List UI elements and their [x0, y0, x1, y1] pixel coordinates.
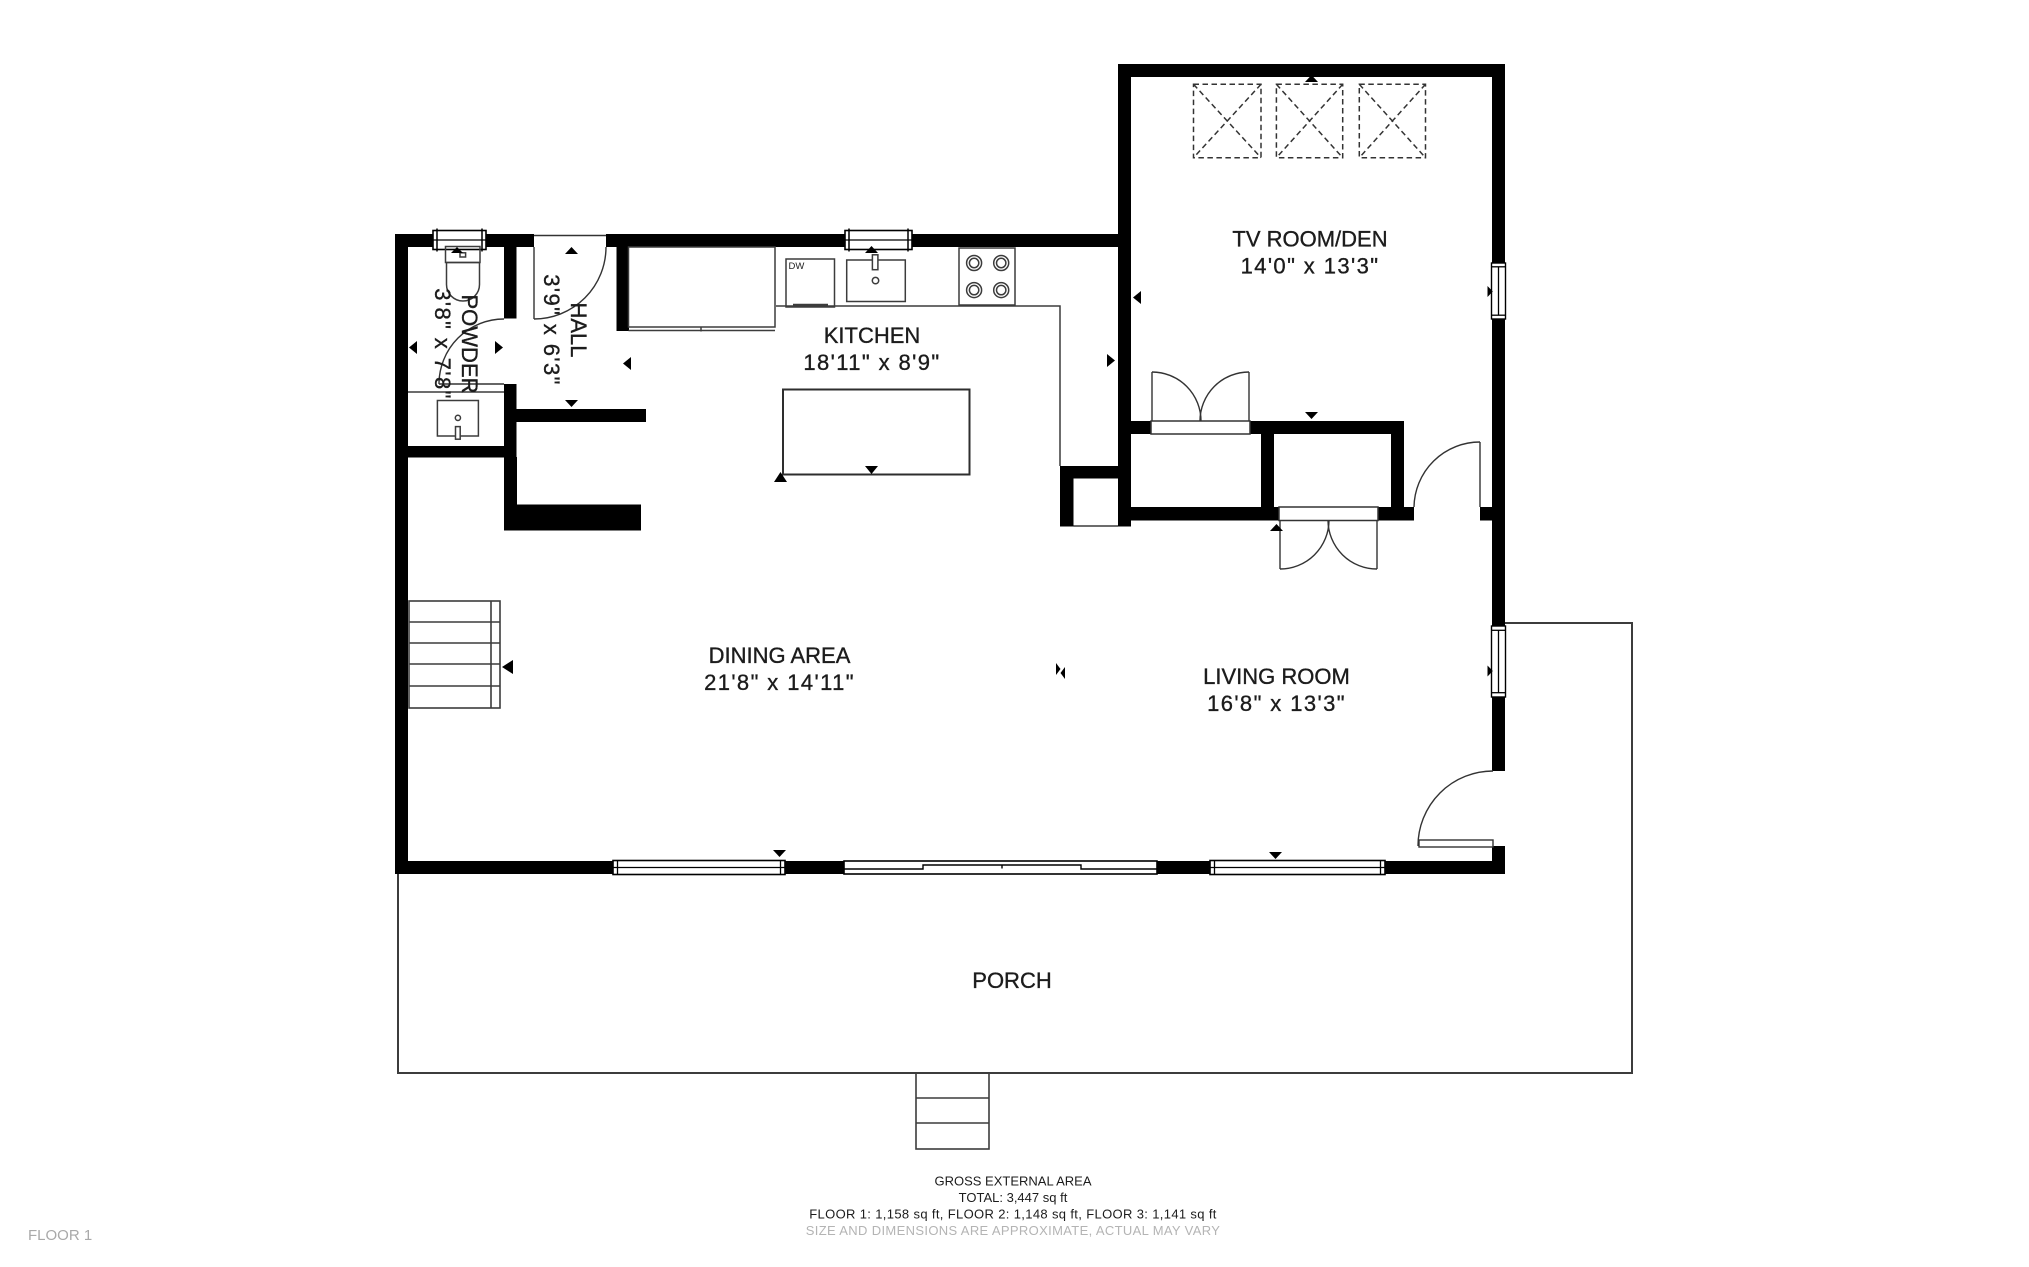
svg-text:FLOOR 1: 1,158 sq ft, FLOOR 2:: FLOOR 1: 1,158 sq ft, FLOOR 2: 1,148 sq …: [809, 1207, 1217, 1222]
svg-text:LIVING ROOM: LIVING ROOM: [1203, 664, 1350, 689]
svg-text:21'8" x 14'11": 21'8" x 14'11": [704, 670, 855, 695]
svg-text:KITCHEN: KITCHEN: [824, 323, 921, 348]
svg-text:TV ROOM/DEN: TV ROOM/DEN: [1232, 227, 1387, 252]
svg-text:16'8" x 13'3": 16'8" x 13'3": [1207, 691, 1346, 716]
svg-text:TOTAL: 3,447 sq ft: TOTAL: 3,447 sq ft: [959, 1190, 1068, 1205]
svg-text:SIZE AND DIMENSIONS ARE APPROX: SIZE AND DIMENSIONS ARE APPROXIMATE, ACT…: [806, 1223, 1221, 1238]
svg-text:DINING AREA: DINING AREA: [709, 643, 851, 668]
svg-text:18'11" x 8'9": 18'11" x 8'9": [803, 350, 940, 375]
svg-text:DW: DW: [789, 261, 805, 272]
svg-text:14'0" x 13'3": 14'0" x 13'3": [1241, 254, 1380, 279]
svg-text:PORCH: PORCH: [972, 968, 1051, 993]
svg-text:GROSS EXTERNAL AREA: GROSS EXTERNAL AREA: [934, 1174, 1091, 1189]
svg-text:FLOOR 1: FLOOR 1: [28, 1227, 92, 1244]
